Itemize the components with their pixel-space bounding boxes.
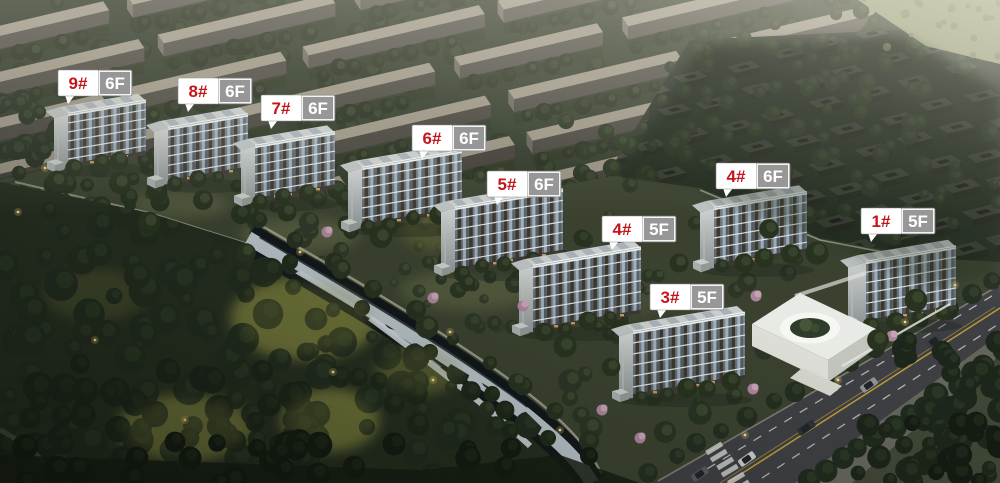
svg-text:3#: 3# — [661, 288, 680, 307]
svg-text:5#: 5# — [498, 175, 517, 194]
svg-text:1#: 1# — [872, 212, 891, 231]
svg-text:6#: 6# — [423, 129, 442, 148]
svg-text:4#: 4# — [727, 167, 746, 186]
svg-text:6F: 6F — [105, 74, 125, 93]
svg-text:4#: 4# — [613, 220, 632, 239]
svg-text:6F: 6F — [225, 82, 245, 101]
svg-text:5F: 5F — [697, 288, 717, 307]
svg-text:5F: 5F — [908, 212, 928, 231]
svg-text:5F: 5F — [649, 220, 669, 239]
svg-text:6F: 6F — [459, 129, 479, 148]
svg-text:7#: 7# — [272, 99, 291, 118]
svg-text:6F: 6F — [534, 175, 554, 194]
svg-text:6F: 6F — [308, 99, 328, 118]
svg-text:8#: 8# — [189, 82, 208, 101]
svg-text:9#: 9# — [69, 74, 88, 93]
svg-text:6F: 6F — [763, 167, 783, 186]
